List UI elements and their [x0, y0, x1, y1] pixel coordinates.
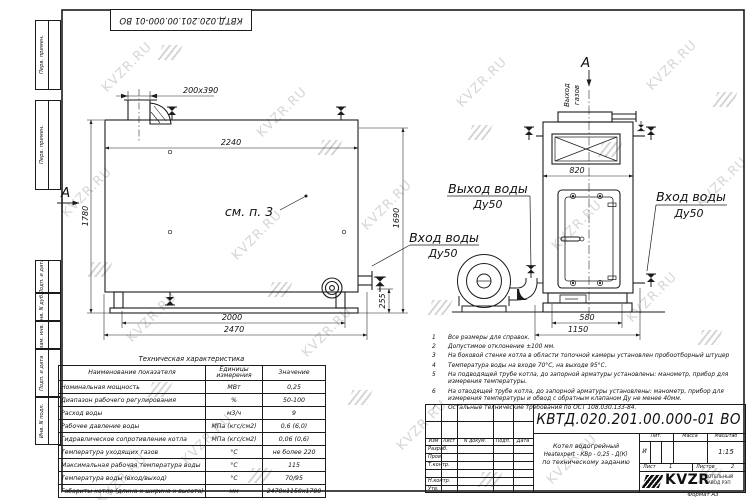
sheet-label: Лист	[643, 464, 656, 470]
document-number: КВТД.020.201.00.000-01 ВО	[533, 405, 745, 433]
rev-col-data: Дата	[513, 439, 533, 444]
rev-col-podp: Подп.	[493, 439, 513, 444]
front-view-dimensions: 820 580 1150	[535, 166, 640, 340]
svg-text:2470: 2470	[224, 325, 244, 334]
drawing-sheet: KVZR.RUKVZR.RUKVZR.RUKVZR.RUKVZR.RUKVZR.…	[0, 0, 750, 500]
svg-text:1150: 1150	[568, 325, 588, 334]
svg-text:1690: 1690	[392, 208, 401, 228]
sheets-number: 2	[731, 464, 734, 470]
rev-col-list: Лист	[441, 439, 457, 444]
svg-text:см. п. 3: см. п. 3	[225, 204, 273, 219]
svg-text:580: 580	[579, 313, 594, 322]
format-label: Формат А3	[662, 492, 744, 498]
svg-text:А: А	[580, 55, 590, 71]
rev-col-ndokum: N докум.	[457, 439, 493, 444]
scale-value: 1:15	[707, 448, 745, 456]
frame-box-podp-data-1: Подп. и дата	[35, 260, 61, 293]
svg-text:А: А	[60, 185, 70, 201]
inverted-doc-number-stamp: КВТД.020.201.00.000-01 ВО	[110, 9, 252, 31]
company-name: КОТЕЛЬНЫЙ ЗАВОД РЭП	[705, 475, 733, 487]
table-header-row: Наименование показателяЕдиницы измерения…	[59, 366, 326, 381]
svg-text:Ду50: Ду50	[427, 247, 457, 260]
svg-text:820: 820	[569, 166, 584, 175]
scale-header: Масштаб	[707, 434, 745, 439]
frame-box-perv-primen-2: Перв. примен.	[35, 100, 61, 190]
water-inlet-label-left: Вход воды Ду50	[372, 230, 479, 266]
kvzr-logo-text: KVZR	[665, 472, 710, 488]
rev-col-izm: Изм	[426, 439, 441, 444]
svg-text:2240: 2240	[221, 138, 241, 147]
liter-header: Лит.	[639, 434, 673, 439]
sig-prov: Пров.	[428, 454, 443, 460]
table-row: Рабочее давление водыМПа (кгс/см2)0,6 (6…	[59, 420, 326, 433]
svg-text:1780: 1780	[81, 206, 90, 226]
water-inlet-label-right: Вход воды Ду50	[647, 189, 727, 271]
table-row: Максимальная рабочая температура воды°С1…	[59, 459, 326, 472]
table-row: Диапазон рабочего регулирования%50-100	[59, 394, 326, 407]
note-item: 3На боковой стенке котла в области топоч…	[432, 353, 742, 361]
water-outlet-label: Выход воды Ду50	[447, 181, 531, 271]
note-item: 1Все размеры для справок.	[432, 335, 742, 343]
kvzr-stripes-icon	[642, 475, 663, 488]
table-row: Температура воды (вход/выход)°С70/95	[59, 472, 326, 485]
svg-text:Вход воды: Вход воды	[409, 230, 479, 245]
note-item: 5На подводящей трубе котла, до запорной …	[432, 372, 742, 387]
svg-text:газов: газов	[573, 85, 581, 105]
frame-box-perv-primen-1: Перв. примен.	[35, 20, 61, 90]
svg-text:Выход: Выход	[563, 83, 571, 107]
sig-tkontr: Т.контр.	[428, 462, 450, 468]
svg-text:Вход воды: Вход воды	[656, 189, 726, 204]
frame-box-vzam-inv: Взам. инв. N	[35, 321, 61, 349]
tech-table-title: Техническая характеристика	[58, 355, 325, 363]
svg-text:Выход воды: Выход воды	[448, 181, 528, 196]
sheets-label: Листов	[696, 464, 715, 470]
mass-header: Масса	[673, 434, 707, 439]
svg-text:200x390: 200x390	[183, 86, 218, 95]
product-name: Котел водогрейный Heatexpert - КВр - 0,2…	[533, 433, 639, 475]
sig-razrab: Разраб.	[428, 446, 448, 452]
table-row: Температура уходящих газов°Сне более 220	[59, 446, 326, 459]
note-item: 6На отводящей трубе котла, до запорной а…	[432, 389, 742, 404]
sig-nkontr: Н.контр.	[428, 478, 450, 484]
section-mark-top: А Выход газов	[563, 55, 590, 107]
boiler-side-view	[105, 89, 386, 313]
svg-text:Ду50: Ду50	[673, 207, 703, 220]
frame-box-inv-dubl: Инв. N дубл.	[35, 293, 61, 321]
stamp-number-text: КВТД.020.201.00.000-01 ВО	[119, 15, 242, 25]
title-block: Изм Лист N докум. Подп. Дата Разраб. Про…	[425, 404, 746, 493]
sig-utv: Утв.	[428, 486, 439, 492]
sheet-number: 1	[669, 464, 672, 470]
technical-notes: 1Все размеры для справок. 2Допустимое от…	[432, 335, 742, 415]
table-row: Гидравлическое сопротивление котлаМПа (к…	[59, 433, 326, 446]
company-logo: KVZR КОТЕЛЬНЫЙ ЗАВОД РЭП	[639, 471, 745, 492]
blower-fan	[458, 255, 544, 313]
table-row: Номинальная мощностьМВт0,25	[59, 381, 326, 394]
table-row: Расход водым3/ч9	[59, 407, 326, 420]
tech-table: Наименование показателяЕдиницы измерения…	[58, 365, 326, 498]
note-item: 2Допустимое отклонение ±100 мм.	[432, 344, 742, 352]
svg-text:Ду50: Ду50	[472, 198, 502, 211]
note-item: 4Температура воды на входе 70°С, на выхо…	[432, 363, 742, 371]
svg-text:255: 255	[378, 293, 387, 308]
table-row: Габариты котла (длина х ширина х высота)…	[59, 485, 326, 498]
svg-text:2000: 2000	[222, 313, 242, 322]
liter-value: И	[639, 448, 650, 455]
see-note-callout: см. п. 3	[225, 195, 308, 220]
